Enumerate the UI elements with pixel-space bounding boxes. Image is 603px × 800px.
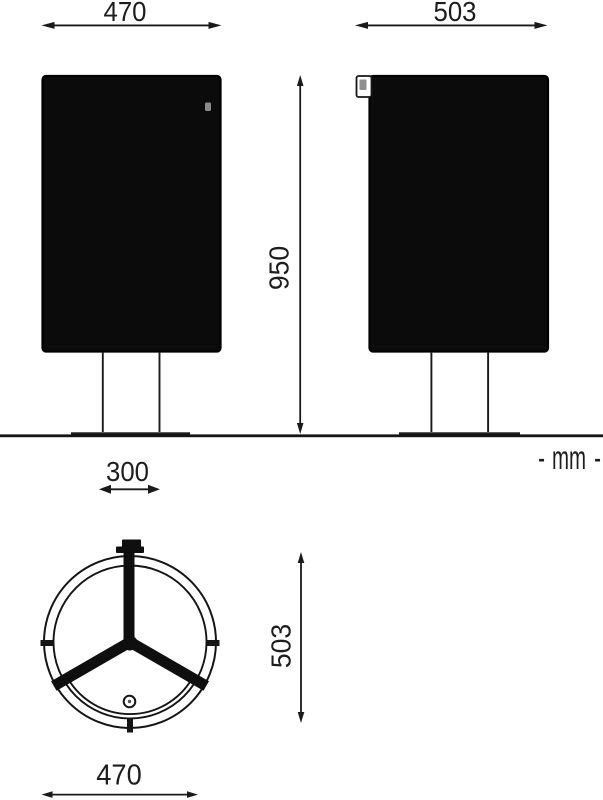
svg-text:-: - [538,439,545,476]
svg-text:470: 470 [96,759,141,791]
svg-text:mm: mm [552,439,586,476]
svg-text:-: - [594,439,601,476]
svg-text:950: 950 [263,246,295,290]
svg-text:470: 470 [104,0,147,27]
svg-text:503: 503 [265,624,297,668]
svg-text:503: 503 [434,0,477,27]
svg-text:300: 300 [106,456,149,487]
